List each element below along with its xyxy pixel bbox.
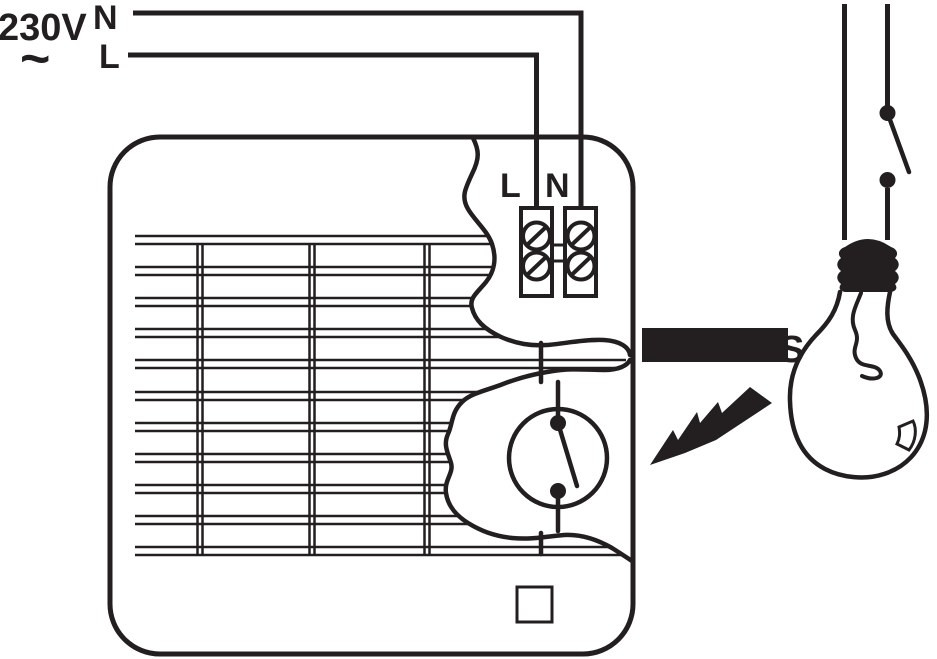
lamp-switch-blade	[888, 113, 910, 172]
switched-live-annotation: S	[642, 328, 804, 371]
lamp-switch-icon	[880, 105, 910, 188]
lightning-bolt-icon	[650, 387, 772, 465]
supply-labels: 230V ~ N L	[0, 0, 120, 88]
light-bulb-icon	[790, 239, 927, 477]
supply-live-label: L	[99, 38, 120, 76]
lamp-switch-contact-bottom	[880, 172, 896, 188]
supply-neutral-label: N	[93, 0, 118, 37]
lamp-circuit	[790, 4, 927, 477]
switched-live-label: S	[779, 329, 804, 371]
terminal-screw-icon	[523, 223, 550, 250]
terminal-live-label: L	[500, 167, 521, 205]
switch-contact-top	[550, 415, 566, 431]
bulb-filament	[853, 293, 881, 378]
panel-square	[517, 587, 552, 622]
terminal-neutral-label: N	[545, 167, 570, 205]
wiring-diagram: 230V ~ N L L N	[0, 0, 937, 659]
fan-wiring-diagram-canvas: 230V ~ N L L N	[0, 0, 937, 659]
bulb-highlight	[897, 421, 915, 450]
redaction-bar	[642, 328, 788, 362]
terminal-screw-icon	[568, 223, 595, 250]
terminal-screw-icon	[568, 253, 595, 280]
terminal-screw-icon	[523, 253, 550, 280]
ac-symbol: ~	[20, 30, 50, 88]
lamp-switch-contact-top	[880, 105, 896, 121]
bulb-cap	[837, 239, 899, 292]
